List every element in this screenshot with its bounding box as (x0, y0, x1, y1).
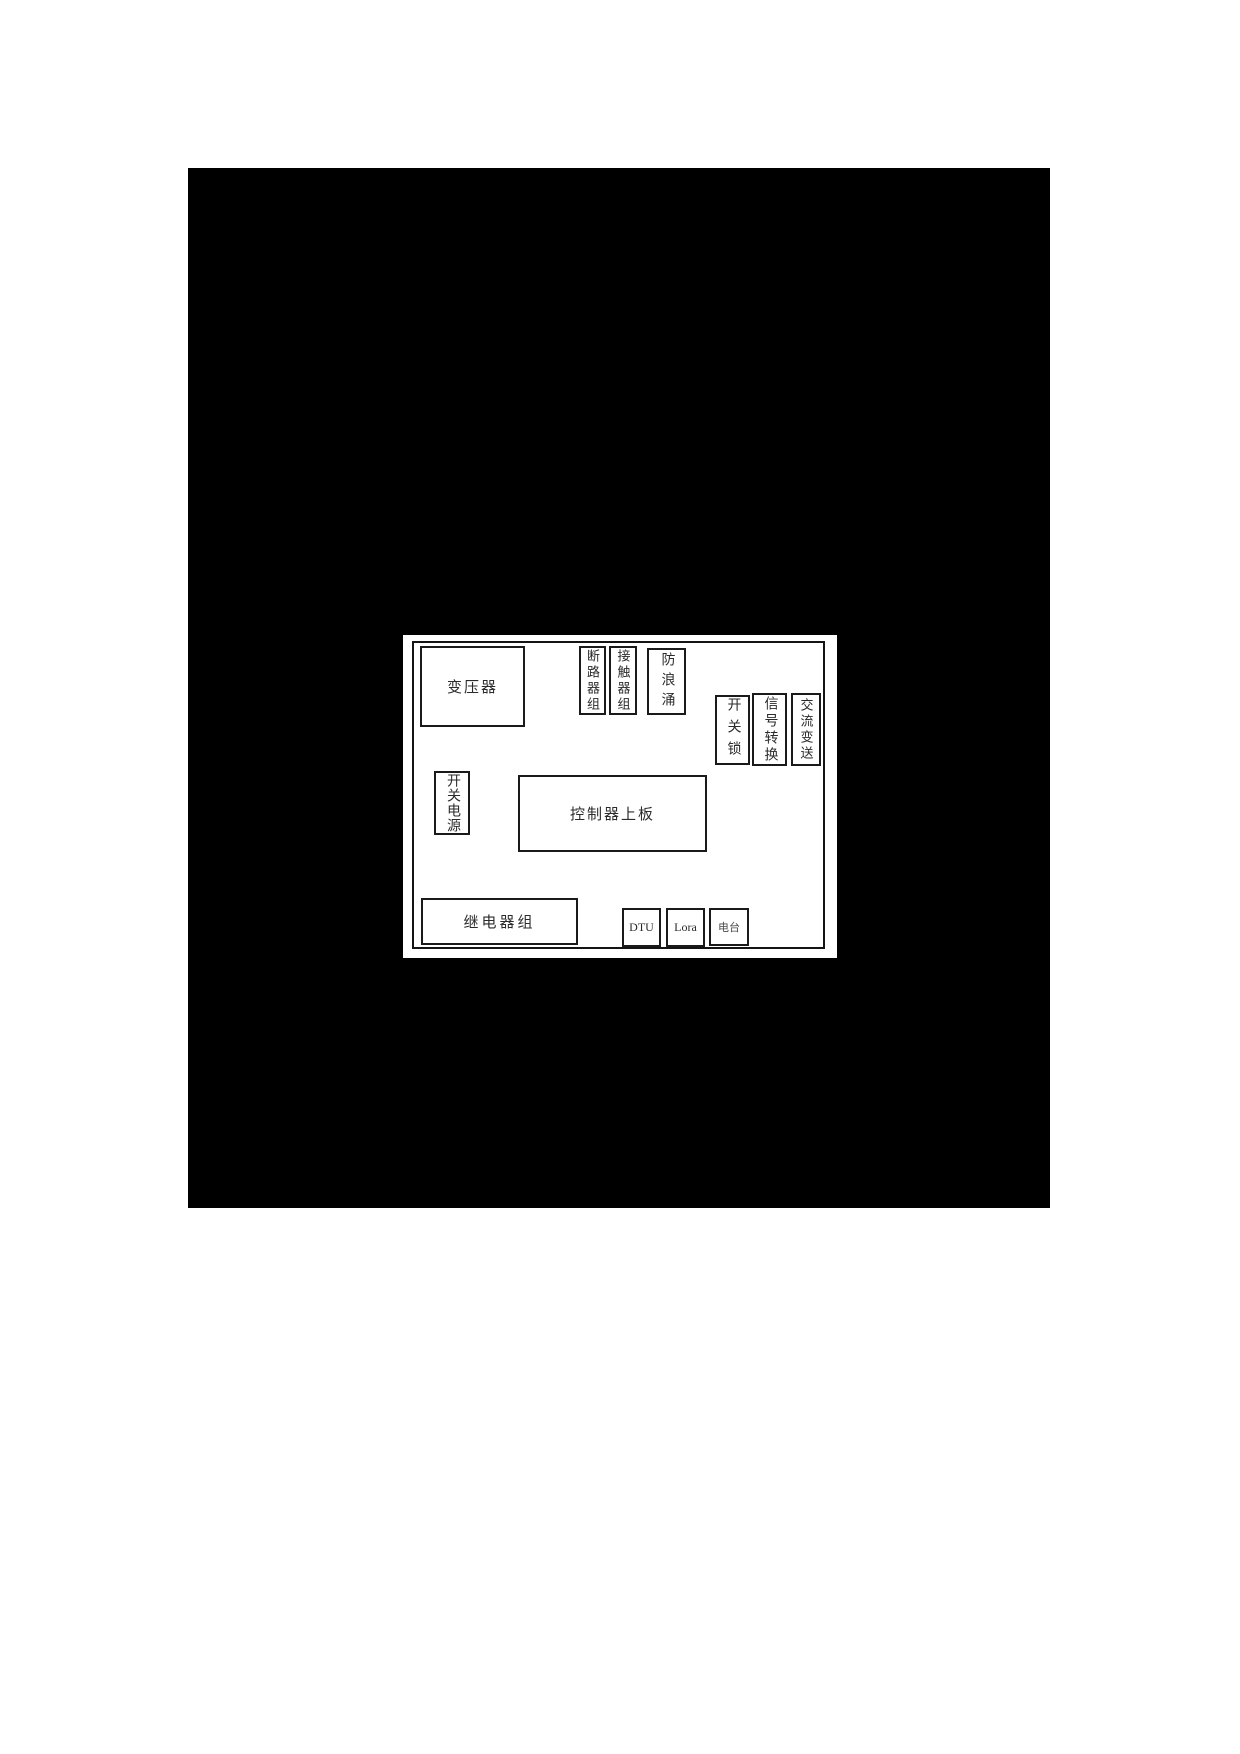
box-transformer: 变压器 (420, 646, 525, 727)
box-switch-lock: 开关锁 (715, 695, 750, 765)
box-surge-protector: 防浪涌 (647, 648, 686, 715)
controller-board-label: 控制器上板 (570, 803, 655, 824)
ac-transmitter-label: 交流变送 (797, 698, 816, 762)
switching-power-label: 开关电源 (442, 773, 462, 833)
surge-protector-label: 防浪涌 (657, 652, 677, 712)
box-switching-power: 开关电源 (434, 771, 470, 835)
box-dtu: DTU (622, 908, 661, 947)
dtu-label: DTU (629, 920, 654, 935)
breaker-group-label: 断路器组 (583, 649, 602, 713)
cabinet-outline: 变压器 断路器组 接触器组 防浪涌 开关锁 信号转换 (412, 641, 825, 949)
switch-lock-label: 开关锁 (723, 697, 743, 763)
box-ac-transmitter: 交流变送 (791, 693, 821, 766)
box-radio: 电台 (709, 908, 749, 946)
lora-label: Lora (674, 920, 697, 935)
relay-group-label: 继电器组 (463, 911, 535, 932)
box-relay-group: 继电器组 (421, 898, 578, 945)
document-page: 变压器 断路器组 接触器组 防浪涌 开关锁 信号转换 (0, 0, 1240, 1754)
box-controller-board: 控制器上板 (518, 775, 707, 852)
box-breaker-group: 断路器组 (579, 646, 606, 715)
cabinet-layout-figure: 变压器 断路器组 接触器组 防浪涌 开关锁 信号转换 (403, 635, 837, 958)
radio-label: 电台 (718, 919, 740, 935)
box-lora: Lora (666, 908, 705, 947)
transformer-label: 变压器 (447, 676, 498, 697)
box-contactor-group: 接触器组 (609, 646, 637, 715)
signal-converter-label: 信号转换 (760, 696, 780, 764)
contactor-group-label: 接触器组 (614, 649, 633, 713)
figure-background: 变压器 断路器组 接触器组 防浪涌 开关锁 信号转换 (188, 168, 1050, 1208)
box-signal-converter: 信号转换 (752, 693, 787, 766)
